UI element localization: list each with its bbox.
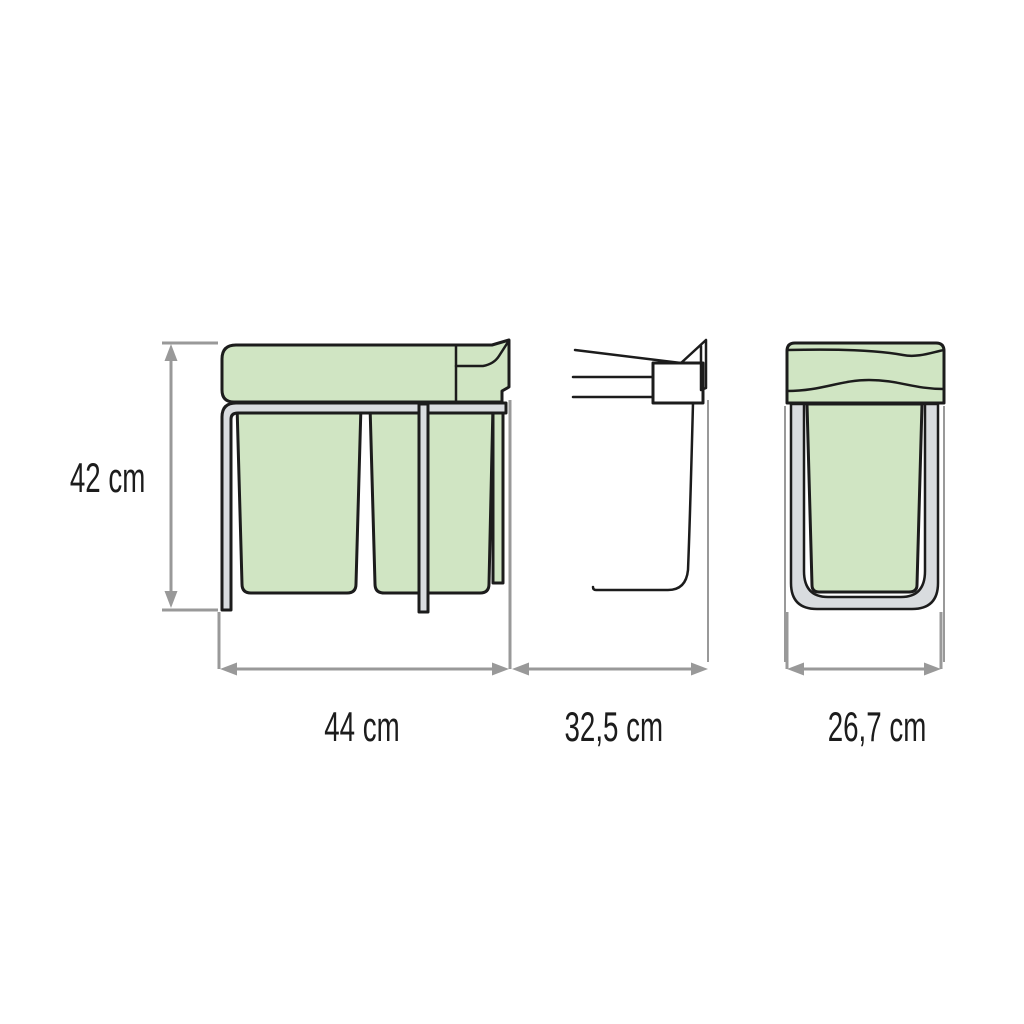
side-lid-diagonal (575, 350, 681, 363)
height-dimension: 42 cm (70, 343, 218, 610)
front-middle-leg (419, 404, 428, 612)
front-lid (222, 340, 509, 402)
dimensions-drawing: 42 cm 44 cm 32,5 cm 26,7 cm (0, 0, 1024, 1024)
width-arrow-right-icon (492, 663, 509, 676)
front-left-bin (237, 405, 361, 593)
front-width-dimension: 26,7 cm (787, 612, 941, 750)
depth-arrow-right-icon (691, 663, 708, 676)
width-dimension-label: 44 cm (324, 703, 399, 750)
door-view (785, 343, 944, 662)
depth-dimension: 32,5 cm (512, 663, 708, 751)
front-width-dimension-label: 26,7 cm (828, 703, 927, 750)
height-arrow-up-icon (165, 344, 178, 361)
height-dimension-label: 42 cm (70, 454, 145, 501)
side-bin-profile (593, 403, 693, 590)
front-rear-strip (493, 405, 503, 583)
front-view (222, 340, 509, 612)
height-arrow-down-icon (165, 591, 178, 608)
front-right-bin (370, 405, 493, 593)
depth-arrow-left-icon (512, 663, 529, 676)
product-dimensions-diagram: 42 cm 44 cm 32,5 cm 26,7 cm (0, 0, 1024, 1024)
depth-dimension-label: 32,5 cm (565, 703, 664, 750)
front-width-arrow-right-icon (924, 663, 941, 676)
width-arrow-left-icon (220, 663, 237, 676)
side-view (573, 340, 708, 662)
door-bin (807, 404, 922, 592)
front-width-arrow-left-icon (787, 663, 804, 676)
side-door-bracket (653, 363, 703, 403)
